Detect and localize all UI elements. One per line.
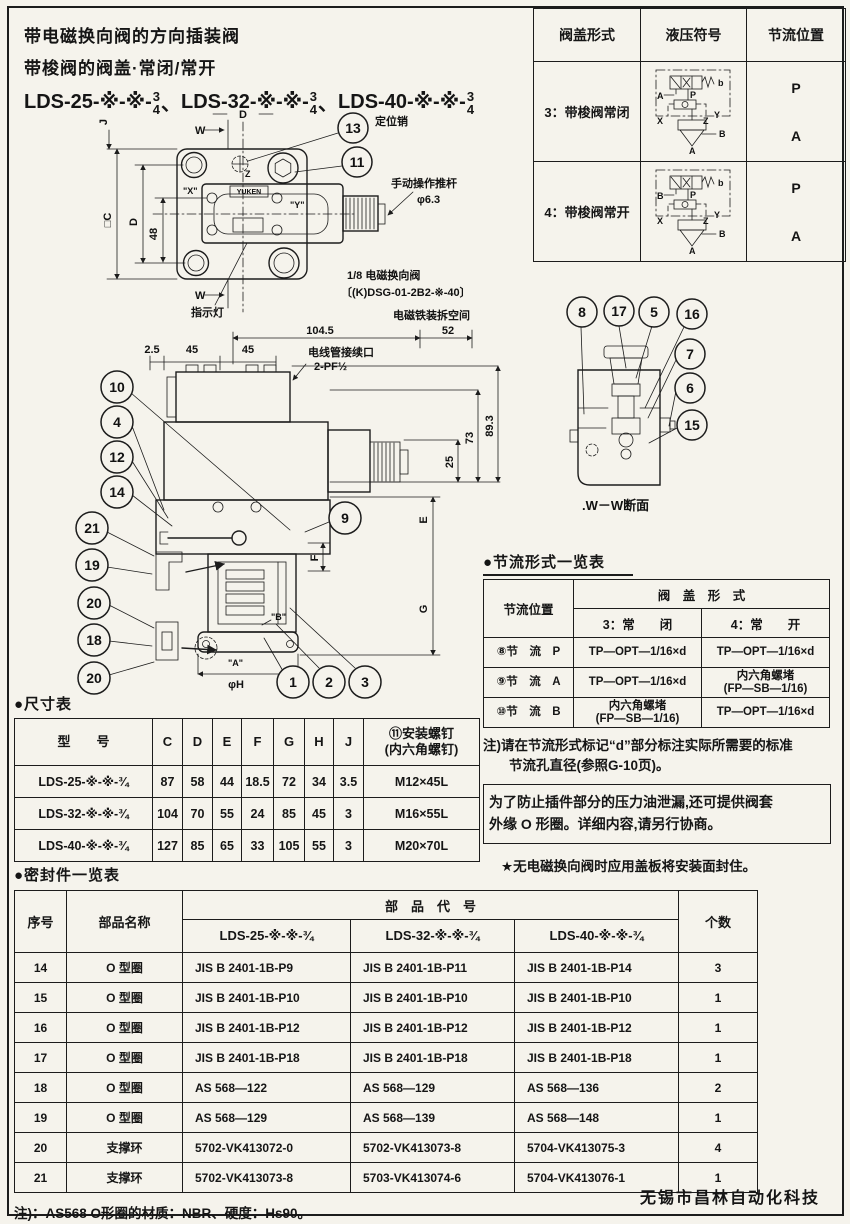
col-header: 液压符号	[641, 9, 747, 62]
table-cell: 15	[15, 983, 67, 1013]
symbol-port-label: b	[718, 178, 724, 188]
table-cell: JIS B 2401-1B-P12	[183, 1013, 351, 1043]
table-row: 3：带梭阀常闭 b A P X Z	[534, 62, 846, 162]
table-cell: M16×55L	[364, 798, 480, 830]
symbol-port-label: B	[719, 229, 726, 239]
table-cell: 24	[242, 798, 274, 830]
ww-section-drawing: 8 17 5 16 7 6 15 .W－W断面	[548, 278, 763, 528]
col-header: F	[242, 719, 274, 766]
table-cell: 支撑环	[67, 1133, 183, 1163]
col-header: G	[274, 719, 305, 766]
col-header: E	[213, 719, 242, 766]
table-cell: O 型圈	[67, 953, 183, 983]
svg-text:12: 12	[109, 449, 125, 465]
table-cell: 21	[15, 1163, 67, 1193]
table-cell: 3	[334, 830, 364, 862]
hydraulic-symbol-drawing: b B P X Z Y B A	[644, 164, 744, 256]
catalog-page: 带电磁换向阀的方向插装阀 带梭阀的阀盖·常闭/常开 LDS-25-※-※- 34…	[0, 0, 850, 1224]
table-cell: 19	[15, 1103, 67, 1133]
col-header: 节流位置	[484, 580, 574, 638]
table-cell: 16	[15, 1013, 67, 1043]
table-cell: 5703-VK413074-6	[351, 1163, 515, 1193]
note-line: 外缘 O 形圈。详细内容,请另行协商。	[489, 814, 825, 836]
col-header: D	[183, 719, 213, 766]
dim-j: J	[98, 119, 110, 125]
callout-20b: 20	[78, 662, 154, 694]
throttle-pos-cell: P A	[747, 162, 846, 262]
table-cell: JIS B 2401-1B-P10	[351, 983, 515, 1013]
solenoid-valve-note: 1/8 电磁换向阀	[347, 268, 420, 282]
table-row: ⑩节 流 B内六角螺堵 (FP—SB—1/16)TP—OPT—1/16×d	[484, 698, 830, 728]
symbol-port-label: Y	[714, 110, 720, 120]
table-cell: 87	[153, 766, 183, 798]
dim-45b: 45	[242, 344, 254, 356]
brand-label: YUKEN	[237, 189, 262, 196]
symbol-port-label: A	[689, 246, 696, 256]
table-cell: O 型圈	[67, 983, 183, 1013]
port-label-b: "B"	[271, 612, 286, 622]
table-cell: JIS B 2401-1B-P11	[351, 953, 515, 983]
hydraulic-symbol-drawing: b A P X Z Y B A	[644, 64, 744, 156]
col-header: 型 号	[15, 719, 153, 766]
removal-space-label: 电磁铁装拆空间	[393, 308, 470, 322]
table-cell: 3	[679, 953, 758, 983]
svg-text:1: 1	[289, 674, 297, 690]
table-cell: 1	[679, 1013, 758, 1043]
table-cell: O 型圈	[67, 1103, 183, 1133]
svg-text:9: 9	[341, 510, 349, 526]
throttle-pos: P	[749, 64, 843, 112]
port-label-y: "Y"	[290, 200, 305, 210]
symbol-port-label: P	[690, 90, 696, 100]
top-view-drawing: YUKEN "X" "Y" Z W W D J □C D	[95, 106, 527, 328]
throttle-table: 节流位置 阀 盖 形 式 3：常 闭 4：常 开 ⑧节 流 PTP—OPT—1/…	[483, 579, 830, 728]
symbol-port-label: A	[657, 91, 664, 101]
col-header: 3：常 闭	[574, 609, 702, 638]
table-row: 18O 型圈AS 568—122AS 568—129AS 568—1362	[15, 1073, 758, 1103]
table-cell: 5702-VK413073-8	[351, 1133, 515, 1163]
table-cell: 34	[305, 766, 334, 798]
throttle-note: 注)请在节流形式标记“d”部分标注实际所需要的标准 节流孔直径(参照G-10页)…	[483, 736, 831, 775]
table-cell: JIS B 2401-1B-P14	[515, 953, 679, 983]
note-line: 为了防止插件部分的压力油泄漏,还可提供阀套	[489, 792, 825, 814]
size-table-section: ●尺寸表 型 号 C D E F G H J ⑪安装螺钉 (内六角螺钉)	[14, 693, 482, 862]
table-cell: 内六角螺堵 (FP—SB—1/16)	[702, 668, 830, 698]
seal-table: 序号 部品名称 部 品 代 号 个数 LDS-25-※-※-¾ LDS-32-※…	[14, 890, 758, 1193]
port-label-z: Z	[245, 169, 251, 179]
symbol-port-label: B	[657, 191, 664, 201]
col-header: LDS-25-※-※-¾	[183, 920, 351, 953]
port-label-x: "X"	[183, 186, 198, 196]
table-cell: 127	[153, 830, 183, 862]
svg-text:2: 2	[325, 674, 333, 690]
dim-phih: φH	[228, 679, 244, 691]
svg-text:19: 19	[84, 557, 100, 573]
throttle-pos: P	[749, 164, 843, 212]
col-header: 节流位置	[747, 9, 846, 62]
table-cell: ⑩节 流 B	[484, 698, 574, 728]
throttle-pos: A	[749, 112, 843, 160]
table-row: 17O 型圈JIS B 2401-1B-P18JIS B 2401-1B-P18…	[15, 1043, 758, 1073]
cover-form-cell: 3：带梭阀常闭	[534, 62, 641, 162]
hydraulic-symbol-cell: b A P X Z Y B A	[641, 62, 747, 162]
table-cell: TP—OPT—1/16×d	[574, 668, 702, 698]
table-row: LDS-40-※-※-¾127856533105553M20×70L	[15, 830, 480, 862]
table-cell: 5704-VK413075-3	[515, 1133, 679, 1163]
table-cell: 5702-VK413073-8	[183, 1163, 351, 1193]
note-line: 节流孔直径(参照G-10页)。	[483, 756, 831, 776]
table-cell: 70	[183, 798, 213, 830]
symbol-port-label: B	[719, 129, 726, 139]
callout-14: 14	[101, 476, 172, 526]
cover-type-table: 阀盖形式 液压符号 节流位置 3：带梭阀常闭 b A P	[533, 8, 846, 262]
callout-15: 15	[649, 410, 707, 443]
table-cell: JIS B 2401-1B-P18	[515, 1043, 679, 1073]
solenoid-valve-model: 〔(K)DSG-01-2B2-※-40〕	[341, 286, 471, 299]
svg-text:20: 20	[86, 670, 102, 686]
svg-text:5: 5	[650, 304, 658, 320]
table-cell: JIS B 2401-1B-P10	[515, 983, 679, 1013]
solenoid-ribs	[346, 198, 374, 229]
dim-104: 104.5	[306, 325, 334, 337]
col-header: C	[153, 719, 183, 766]
callout-17: 17	[604, 296, 634, 368]
table-cell: 内六角螺堵 (FP—SB—1/16)	[574, 698, 702, 728]
dim-73: 73	[464, 432, 476, 444]
table-cell: AS 568—122	[183, 1073, 351, 1103]
table-cell: 14	[15, 953, 67, 983]
dim-48: 48	[148, 228, 160, 240]
table-row: LDS-25-※-※-¾87584418.572343.5M12×45L	[15, 766, 480, 798]
symbol-port-label: X	[657, 116, 663, 126]
table-cell: AS 568—129	[183, 1103, 351, 1133]
table-cell: 1	[679, 1043, 758, 1073]
symbol-port-label: b	[718, 78, 724, 88]
table-row: LDS-32-※-※-¾10470552485453M16×55L	[15, 798, 480, 830]
table-cell: LDS-32-※-※-¾	[15, 798, 153, 830]
col-header: H	[305, 719, 334, 766]
table-row: 20支撑环5702-VK413072-05702-VK413073-85704-…	[15, 1133, 758, 1163]
table-cell: JIS B 2401-1B-P12	[515, 1013, 679, 1043]
table-cell: 33	[242, 830, 274, 862]
dim-2-5: 2.5	[144, 344, 159, 356]
callout-18: 18	[78, 624, 152, 656]
svg-text:17: 17	[611, 303, 627, 319]
cover-form-cell: 4：带梭阀常开	[534, 162, 641, 262]
dim-g: G	[418, 605, 430, 614]
dim-c: □C	[102, 213, 114, 228]
table-cell: M12×45L	[364, 766, 480, 798]
table-row: 19O 型圈AS 568—129AS 568—139AS 568—1481	[15, 1103, 758, 1133]
svg-text:15: 15	[684, 417, 700, 433]
rod-dia-label: φ6.3	[417, 194, 440, 206]
svg-text:14: 14	[109, 484, 125, 500]
table-cell: 85	[274, 798, 305, 830]
col-header: J	[334, 719, 364, 766]
table-cell: 44	[213, 766, 242, 798]
ww-section-label: .W－W断面	[582, 498, 649, 513]
table-cell: 18	[15, 1073, 67, 1103]
symbol-port-label: Y	[714, 210, 720, 220]
table-cell: 17	[15, 1043, 67, 1073]
col-header: 部品名称	[67, 891, 183, 953]
throttle-pos: A	[749, 212, 843, 260]
table-cell: M20×70L	[364, 830, 480, 862]
table-row: ⑧节 流 PTP—OPT—1/16×dTP—OPT—1/16×d	[484, 638, 830, 668]
col-header: LDS-40-※-※-¾	[515, 920, 679, 953]
table-cell: 3	[334, 798, 364, 830]
table-cell: 3.5	[334, 766, 364, 798]
table-cell: 1	[679, 1103, 758, 1133]
dim-f: F	[309, 554, 321, 561]
callout-19: 19	[76, 549, 152, 581]
oring-offer-note: 为了防止插件部分的压力油泄漏,还可提供阀套 外缘 O 形圈。详细内容,请另行协商…	[483, 784, 831, 843]
svg-text:11: 11	[350, 154, 365, 170]
dim-e: E	[418, 516, 430, 523]
callout-9: 9	[305, 502, 361, 534]
table-row: 4：带梭阀常开 b B P X Z	[534, 162, 846, 262]
symbol-port-label: A	[689, 146, 696, 156]
col-header: 序号	[15, 891, 67, 953]
table-cell: 支撑环	[67, 1163, 183, 1193]
table-cell: 4	[679, 1133, 758, 1163]
table-row: 16O 型圈JIS B 2401-1B-P12JIS B 2401-1B-P12…	[15, 1013, 758, 1043]
pin-label: 定位销	[375, 114, 408, 128]
company-name: 无锡市昌林自动化科技	[640, 1184, 820, 1208]
table-cell: 104	[153, 798, 183, 830]
table-cell: LDS-25-※-※-¾	[15, 766, 153, 798]
table-cell: LDS-40-※-※-¾	[15, 830, 153, 862]
solenoid-connector-ribs	[370, 442, 400, 482]
symbol-port-label: P	[690, 190, 696, 200]
col-header: 个数	[679, 891, 758, 953]
dim-d-top: D	[239, 109, 247, 121]
rod-label: 手动操作推杆	[391, 176, 457, 190]
svg-text:21: 21	[84, 520, 100, 536]
svg-text:18: 18	[86, 632, 102, 648]
table-cell: AS 568—139	[351, 1103, 515, 1133]
table-cell: JIS B 2401-1B-P10	[183, 983, 351, 1013]
dim-52: 52	[442, 325, 454, 337]
table-cell: JIS B 2401-1B-P18	[351, 1043, 515, 1073]
seal-table-section: ●密封件一览表 序号 部品名称 部 品 代 号 个数 LDS-25-※-※-¾ …	[14, 864, 760, 1222]
dim-89: 89.3	[484, 415, 496, 436]
col-header: 阀 盖 形 式	[574, 580, 830, 609]
section-heading: ●节流形式一览表	[483, 551, 633, 576]
svg-text:3: 3	[361, 674, 369, 690]
table-cell: 105	[274, 830, 305, 862]
table-cell: AS 568—148	[515, 1103, 679, 1133]
symbol-port-label: X	[657, 216, 663, 226]
svg-text:10: 10	[109, 379, 125, 395]
page-subtitle: 带梭阀的阀盖·常闭/常开	[24, 54, 524, 79]
svg-text:8: 8	[578, 304, 586, 320]
table-cell: O 型圈	[67, 1043, 183, 1073]
callout-8: 8	[567, 297, 597, 414]
port-label-a: "A"	[228, 658, 243, 668]
dim-d-left: D	[128, 218, 140, 226]
col-header: 部 品 代 号	[183, 891, 679, 920]
table-cell: 2	[679, 1073, 758, 1103]
table-cell: AS 568—136	[515, 1073, 679, 1103]
table-cell: TP—OPT—1/16×d	[702, 638, 830, 668]
section-view-drawing: 104.5 52 2.5 45 45 电线管接续口 2-PF½ 25 73	[68, 322, 536, 714]
table-cell: ⑨节 流 A	[484, 668, 574, 698]
col-header: ⑪安装螺钉 (内六角螺钉)	[364, 719, 480, 766]
svg-text:16: 16	[684, 306, 700, 322]
callout-20: 20	[78, 587, 154, 628]
table-cell: 5702-VK413072-0	[183, 1133, 351, 1163]
table-cell: ⑧节 流 P	[484, 638, 574, 668]
table-row: 15O 型圈JIS B 2401-1B-P10JIS B 2401-1B-P10…	[15, 983, 758, 1013]
col-header: LDS-32-※-※-¾	[351, 920, 515, 953]
svg-text:20: 20	[86, 595, 102, 611]
indicator-label: 指示灯	[191, 305, 224, 319]
conduit-size-label: 2-PF½	[314, 361, 347, 373]
note-line: 注)请在节流形式标记“d”部分标注实际所需要的标准	[483, 736, 831, 756]
dim-45a: 45	[186, 344, 198, 356]
section-mark-w: W	[195, 125, 206, 137]
table-cell: 72	[274, 766, 305, 798]
section-heading: ●密封件一览表	[14, 864, 760, 885]
svg-text:6: 6	[686, 380, 694, 396]
table-row: 14O 型圈JIS B 2401-1B-P9JIS B 2401-1B-P11J…	[15, 953, 758, 983]
table-cell: 65	[213, 830, 242, 862]
throttle-pos-cell: P A	[747, 62, 846, 162]
throttle-section: ●节流形式一览表 节流位置 阀 盖 形 式 3：常 闭 4：常 开 ⑧节 流 P…	[483, 551, 831, 875]
table-cell: 1	[679, 983, 758, 1013]
conduit-label: 电线管接续口	[308, 345, 374, 359]
table-cell: JIS B 2401-1B-P9	[183, 953, 351, 983]
dim-25: 25	[444, 456, 456, 468]
header-block: 带电磁换向阀的方向插装阀 带梭阀的阀盖·常闭/常开 LDS-25-※-※- 34…	[24, 22, 524, 116]
table-cell: 45	[305, 798, 334, 830]
table-cell: 55	[305, 830, 334, 862]
col-header: 阀盖形式	[534, 9, 641, 62]
table-cell: O 型圈	[67, 1073, 183, 1103]
size-table: 型 号 C D E F G H J ⑪安装螺钉 (内六角螺钉) LDS-25-※…	[14, 718, 480, 862]
section-mark-w: W	[195, 290, 206, 302]
hydraulic-symbol-cell: b B P X Z Y B A	[641, 162, 747, 262]
table-cell: JIS B 2401-1B-P12	[351, 1013, 515, 1043]
section-heading: ●尺寸表	[14, 693, 482, 714]
table-cell: JIS B 2401-1B-P18	[183, 1043, 351, 1073]
table-cell: AS 568—129	[351, 1073, 515, 1103]
table-cell: TP—OPT—1/16×d	[574, 638, 702, 668]
col-header: 4：常 开	[702, 609, 830, 638]
callout-1: 1	[264, 638, 309, 698]
page-title: 带电磁换向阀的方向插装阀	[24, 22, 524, 47]
svg-text:4: 4	[113, 414, 121, 430]
table-cell: 18.5	[242, 766, 274, 798]
svg-text:7: 7	[686, 346, 694, 362]
table-cell: 20	[15, 1133, 67, 1163]
table-row: ⑨节 流 ATP—OPT—1/16×d内六角螺堵 (FP—SB—1/16)	[484, 668, 830, 698]
table-cell: O 型圈	[67, 1013, 183, 1043]
svg-text:13: 13	[345, 120, 361, 136]
table-cell: 55	[213, 798, 242, 830]
table-cell: 58	[183, 766, 213, 798]
table-cell: 85	[183, 830, 213, 862]
table-cell: TP—OPT—1/16×d	[702, 698, 830, 728]
